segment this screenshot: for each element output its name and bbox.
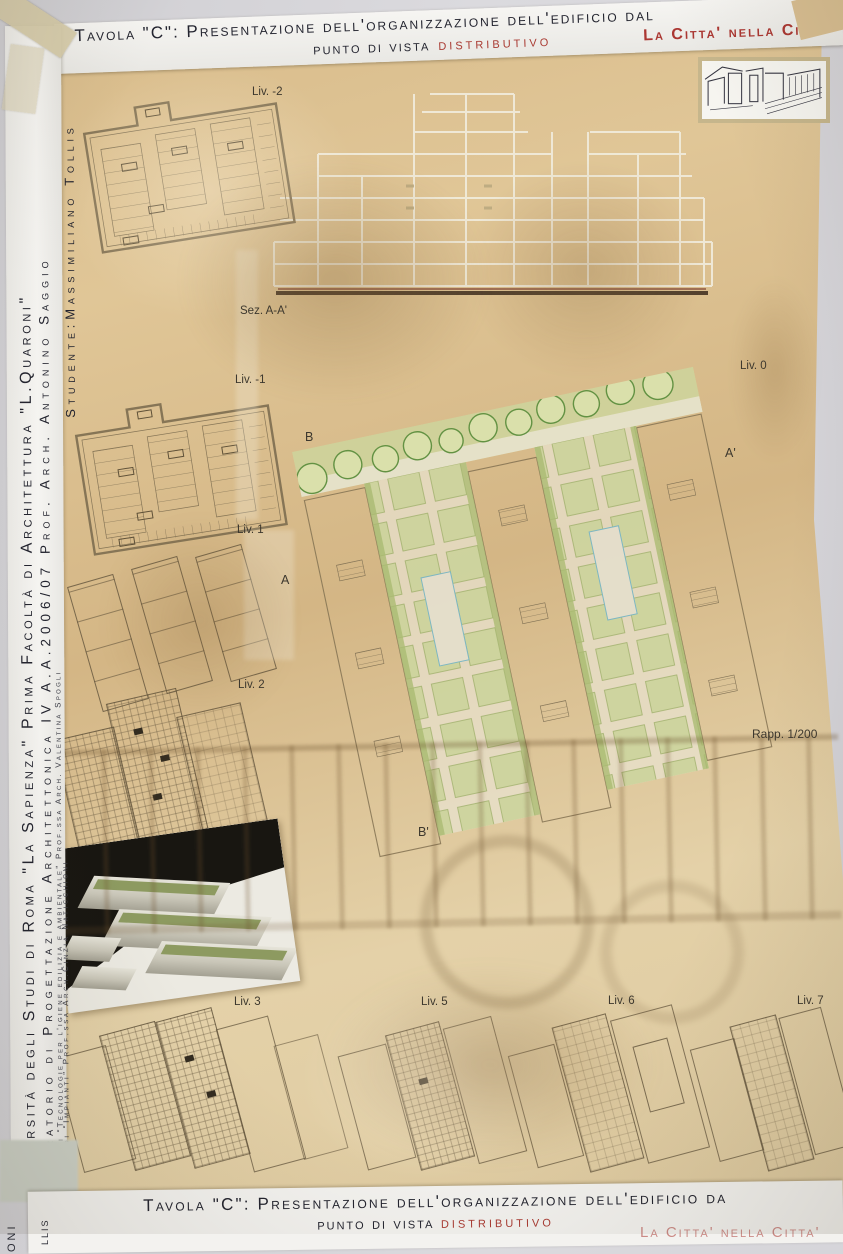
label-section-aa: Sez. A-A' — [240, 305, 287, 317]
plan-detail — [184, 1054, 194, 1062]
physical-model-photo — [46, 819, 301, 1014]
site-plan-drawing — [292, 367, 780, 863]
building-section-drawing — [256, 86, 726, 308]
label-liv-5: Liv. 5 — [421, 996, 448, 1008]
floor-plan-liv-5-cluster — [348, 1012, 523, 1182]
plan-detail — [152, 793, 162, 801]
next-board-side-fragment: oni — [2, 1223, 19, 1252]
section-lines — [256, 86, 726, 308]
model-building-bar — [145, 941, 298, 980]
model-green-roof — [93, 879, 220, 895]
model-green-roof — [161, 944, 288, 960]
plan-detail — [206, 1090, 216, 1098]
atrium-outline — [632, 1038, 684, 1113]
next-title-line2-prefix: punto di vista — [317, 1215, 434, 1234]
plan-detail — [160, 754, 170, 762]
title-block-student: Studente:Massimiliano Tollis — [61, 123, 78, 417]
board-title-line2: punto di vistadistributivo — [313, 33, 552, 60]
section-marker-a-prime: A' — [725, 446, 736, 460]
floor-plan-liv-7-cluster — [700, 1006, 842, 1184]
next-board-motto-partial: La Citta' nella Citta' — [640, 1224, 820, 1241]
label-liv-7: Liv. 7 — [797, 995, 824, 1007]
plan-detail — [418, 1077, 428, 1085]
floor-plan-liv-6-cluster — [516, 1006, 706, 1184]
ghost-reflection — [244, 530, 294, 660]
label-liv-3: Liv. 3 — [234, 996, 261, 1008]
label-liv-1: Liv. 1 — [237, 524, 264, 536]
scale-note: Rapp. 1/200 — [752, 727, 817, 741]
next-board-side-fragment: llis — [36, 1218, 51, 1245]
sketch-drawing — [702, 61, 826, 116]
model-building-bar — [71, 966, 137, 990]
plan-detail — [133, 728, 143, 736]
title-line2-prefix: punto di vista — [313, 37, 431, 58]
label-liv-6: Liv. 6 — [608, 995, 635, 1007]
parking-plan-drawing — [72, 73, 307, 279]
section-marker-a: A — [281, 573, 289, 587]
label-liv-minus1: Liv. -1 — [235, 374, 265, 386]
city-sketch-thumbnail — [698, 57, 830, 123]
floor-plan-liv-minus2 — [72, 73, 307, 279]
section-marker-b-prime: B' — [418, 825, 429, 839]
label-liv-minus2: Liv. -2 — [252, 86, 282, 98]
site-plan-liv-0 — [292, 367, 780, 863]
next-board-title-strip: Tavola "C": Presentazione dell'organizza… — [28, 1180, 843, 1253]
title-block-strip: Università degli Studi di Roma "La Sapie… — [5, 26, 67, 1192]
label-liv-2: Liv. 2 — [238, 679, 265, 691]
floor-plan-liv-3-cluster — [60, 1006, 342, 1184]
next-title-line2-highlight: distributivo — [441, 1213, 554, 1232]
model-green-roof — [118, 913, 261, 930]
model-building-bar — [78, 876, 231, 915]
title-line2-highlight: distributivo — [430, 33, 552, 54]
section-marker-b: B — [305, 430, 313, 444]
label-liv-0: Liv. 0 — [740, 360, 767, 372]
